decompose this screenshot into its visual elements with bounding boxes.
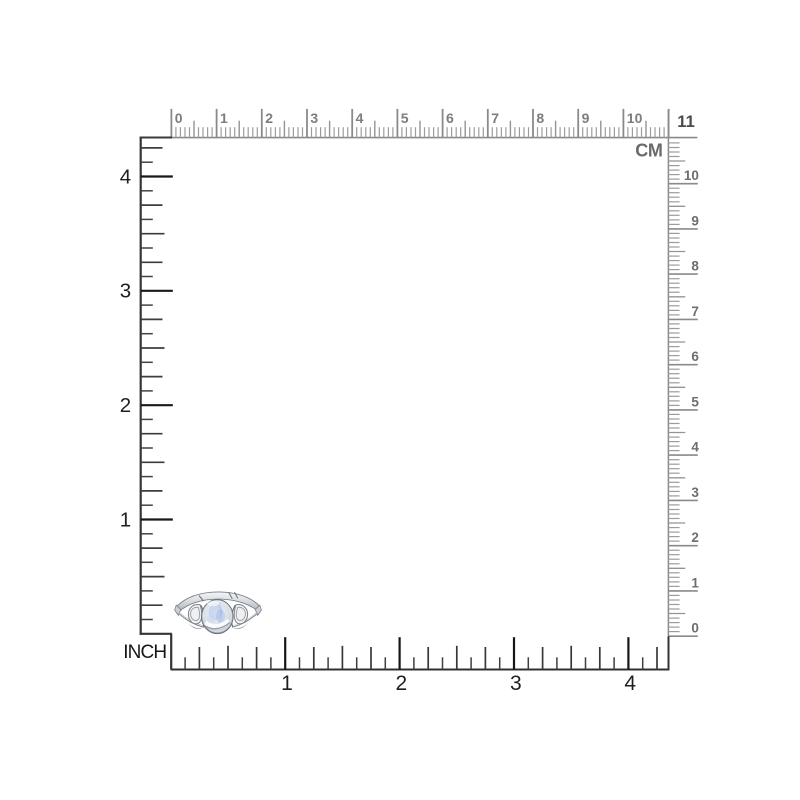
svg-text:3: 3 bbox=[310, 110, 318, 126]
svg-text:5: 5 bbox=[401, 110, 409, 126]
svg-text:11: 11 bbox=[677, 113, 694, 131]
svg-text:5: 5 bbox=[691, 394, 699, 409]
svg-text:10: 10 bbox=[627, 110, 643, 126]
svg-text:4: 4 bbox=[356, 110, 364, 126]
svg-text:10: 10 bbox=[684, 168, 699, 183]
svg-text:4: 4 bbox=[624, 672, 636, 695]
svg-text:2: 2 bbox=[396, 672, 408, 695]
svg-text:INCH: INCH bbox=[123, 642, 166, 663]
svg-text:2: 2 bbox=[265, 110, 273, 126]
svg-text:1: 1 bbox=[691, 575, 699, 590]
svg-text:1: 1 bbox=[281, 672, 293, 695]
svg-text:3: 3 bbox=[120, 280, 131, 303]
svg-text:3: 3 bbox=[510, 672, 522, 695]
svg-text:6: 6 bbox=[446, 110, 454, 126]
svg-text:7: 7 bbox=[491, 110, 499, 126]
svg-text:CM: CM bbox=[635, 140, 662, 160]
svg-text:9: 9 bbox=[582, 110, 590, 126]
svg-text:1: 1 bbox=[220, 110, 228, 126]
svg-text:0: 0 bbox=[691, 621, 699, 636]
svg-text:4: 4 bbox=[691, 440, 699, 455]
svg-text:4: 4 bbox=[120, 165, 131, 188]
svg-text:7: 7 bbox=[691, 304, 699, 319]
svg-text:2: 2 bbox=[691, 530, 699, 545]
svg-text:3: 3 bbox=[691, 485, 699, 500]
svg-text:9: 9 bbox=[691, 213, 699, 228]
svg-text:0: 0 bbox=[175, 110, 183, 126]
svg-text:6: 6 bbox=[691, 349, 699, 364]
svg-text:8: 8 bbox=[691, 259, 699, 274]
svg-text:1: 1 bbox=[120, 508, 131, 531]
svg-text:2: 2 bbox=[120, 394, 131, 417]
svg-text:8: 8 bbox=[536, 110, 544, 126]
